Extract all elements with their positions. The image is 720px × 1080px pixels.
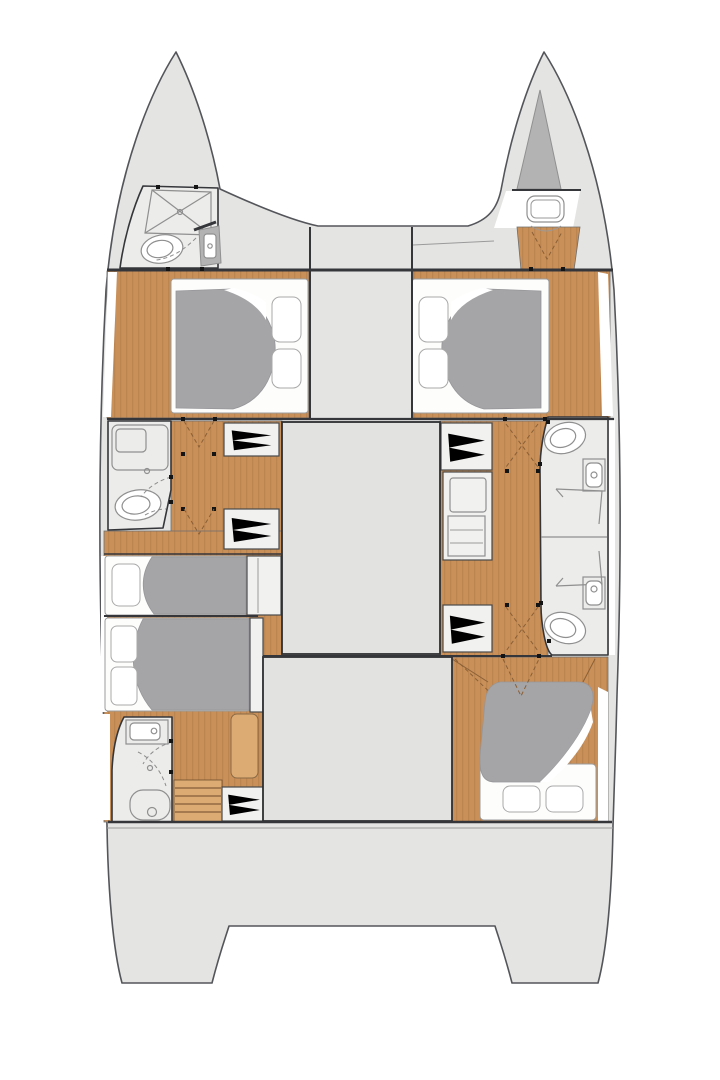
- pillow: [419, 349, 448, 388]
- door-dot: [536, 469, 540, 473]
- pillow: [503, 786, 540, 812]
- washbasin-icon: [586, 581, 602, 605]
- door-dot: [156, 185, 160, 189]
- door-dot: [181, 452, 185, 456]
- door-dot: [529, 267, 533, 271]
- door-dot: [169, 739, 173, 743]
- starboard-side-sliver-mid: [609, 420, 615, 655]
- pillow: [111, 626, 137, 662]
- pillow: [272, 349, 301, 388]
- door-dot: [169, 475, 173, 479]
- pillow: [419, 297, 448, 342]
- blanket: [133, 619, 249, 710]
- floor-plan-canvas: Catamaran interior layout — top-view flo…: [0, 0, 720, 1080]
- pillow: [112, 564, 140, 606]
- washbasin-icon: [586, 463, 602, 487]
- washbasin-icon: [204, 234, 216, 258]
- door-dot: [181, 417, 185, 421]
- door-dot: [505, 469, 509, 473]
- door-dot: [169, 500, 173, 504]
- port-forward-berth: [171, 279, 308, 413]
- wardrobe-icon: [441, 423, 492, 470]
- starboard-forward-berth: [412, 279, 549, 413]
- door-dot: [537, 654, 541, 658]
- wardrobe-icon: [224, 423, 279, 456]
- door-dot: [212, 452, 216, 456]
- port-mid-bathroom: [108, 421, 171, 530]
- door-dot: [546, 420, 550, 424]
- catamaran-floor-plan: Catamaran interior layout — top-view flo…: [0, 0, 720, 1080]
- door-dot: [169, 770, 173, 774]
- door-dot: [194, 185, 198, 189]
- pillow: [272, 297, 301, 342]
- door-dot: [501, 654, 505, 658]
- washbasin-icon: [130, 723, 160, 740]
- door-dot: [213, 417, 217, 421]
- door-dot: [538, 462, 542, 466]
- berth-side-unit: [250, 618, 263, 712]
- seat-icon: [231, 714, 258, 778]
- port-mid-berth: [105, 556, 281, 615]
- door-dot: [200, 267, 204, 271]
- starboard-wardrobes: [441, 423, 492, 652]
- port-aft-bathroom: [112, 717, 172, 822]
- pillow: [111, 667, 137, 705]
- pillow: [546, 786, 583, 812]
- starboard-mid-bathrooms: [540, 417, 608, 655]
- wardrobe-icon: [222, 787, 266, 821]
- door-dot: [503, 417, 507, 421]
- door-dot: [505, 603, 509, 607]
- steps-icon: [174, 780, 222, 822]
- door-dot: [561, 267, 565, 271]
- door-dot: [547, 639, 551, 643]
- wardrobe-icon: [443, 605, 492, 652]
- wardrobe-icon: [224, 509, 279, 549]
- door-dot: [166, 267, 170, 271]
- starboard-side-sliver-aft: [598, 687, 608, 821]
- bridgedeck-block-aft: [263, 657, 452, 821]
- bridgedeck-block-forward: [282, 422, 440, 654]
- door-dot: [539, 601, 543, 605]
- port-side-sliver-aft: [102, 714, 110, 820]
- berth-side-unit: [247, 556, 281, 615]
- blanket: [143, 557, 246, 614]
- port-aft-berth: [105, 618, 263, 712]
- forepeak-floor: [517, 227, 580, 270]
